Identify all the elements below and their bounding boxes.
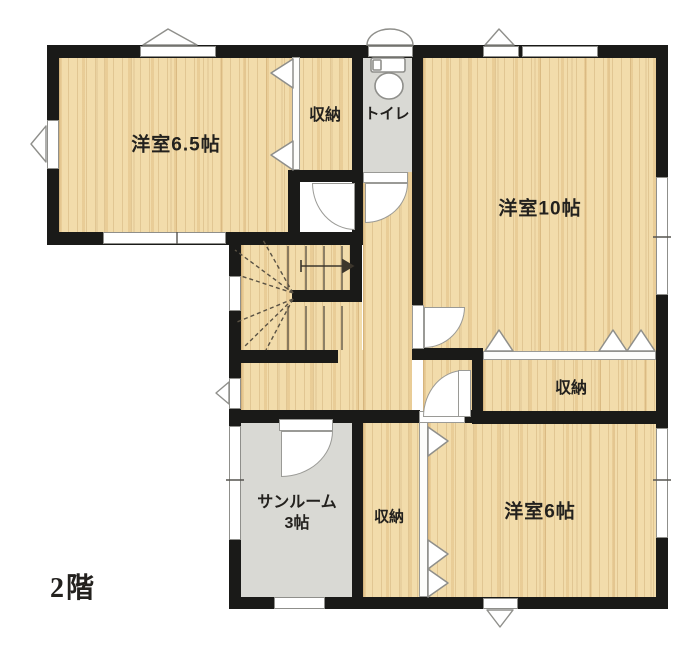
closet-bottom-label: 収納: [374, 506, 404, 527]
window-room6-5-top: [140, 46, 216, 57]
swing-mark-hall-left: [216, 382, 229, 404]
floor-plan: 洋室6.5帖 収納 トイレ 洋室10帖 収納 サンルーム 3帖 収納 洋室6帖 …: [0, 0, 700, 654]
stair-lower-floor: [241, 302, 362, 350]
wall-stair-bottom: [229, 350, 338, 363]
toilet-door-leaf: [363, 172, 408, 183]
window-sunroom-bottom: [274, 597, 325, 609]
swing-mark-room6-5-top: [143, 29, 197, 45]
room-western-6-5-label: 洋室6.5帖: [131, 130, 220, 157]
closet-top-door-track: [292, 57, 300, 170]
floor-number-label: 2階: [50, 566, 96, 606]
wall-stair-inner-horizontal: [292, 290, 362, 302]
wall-closet-right-bottom: [472, 411, 668, 424]
swing-mark-room6-5-left: [31, 126, 46, 162]
closet-top-label: 収納: [309, 101, 341, 125]
window-sunroom-left: [229, 426, 241, 540]
toilet-bay-window-icon: [367, 29, 413, 45]
room-western-10-label: 洋室10帖: [498, 194, 581, 221]
window-room10-right: [656, 177, 668, 295]
wall-sunroom-right: [352, 422, 363, 597]
swing-mark-room10-top: [485, 29, 514, 45]
window-room10-top: [522, 46, 598, 57]
window-hall-left: [229, 378, 241, 409]
window-room6-bottom: [483, 598, 518, 609]
wall-alcove-left: [288, 182, 300, 232]
swing-mark-room6-bottom: [487, 610, 513, 627]
window-stair-left: [229, 276, 241, 311]
room-western-6-label: 洋室6帖: [504, 497, 576, 524]
window-room6-5-left: [47, 120, 59, 169]
wall-toilet-right-room10-left: [412, 45, 423, 307]
closet-right-label: 収納: [555, 374, 587, 398]
window-room6-right: [656, 428, 668, 538]
room6-door-leaf: [458, 370, 471, 417]
window-toilet-top: [368, 46, 413, 57]
window-room10-top-small: [483, 46, 519, 57]
room10-door-leaf: [412, 305, 424, 349]
sunroom-door-leaf: [279, 419, 333, 431]
toilet-label: トイレ: [364, 103, 409, 124]
closet-bottom-door-track: [419, 422, 428, 597]
closet-right-door-track: [483, 351, 656, 360]
sunroom-size-label: 3帖: [285, 509, 310, 533]
window-room6-5-bottom: [103, 232, 226, 244]
